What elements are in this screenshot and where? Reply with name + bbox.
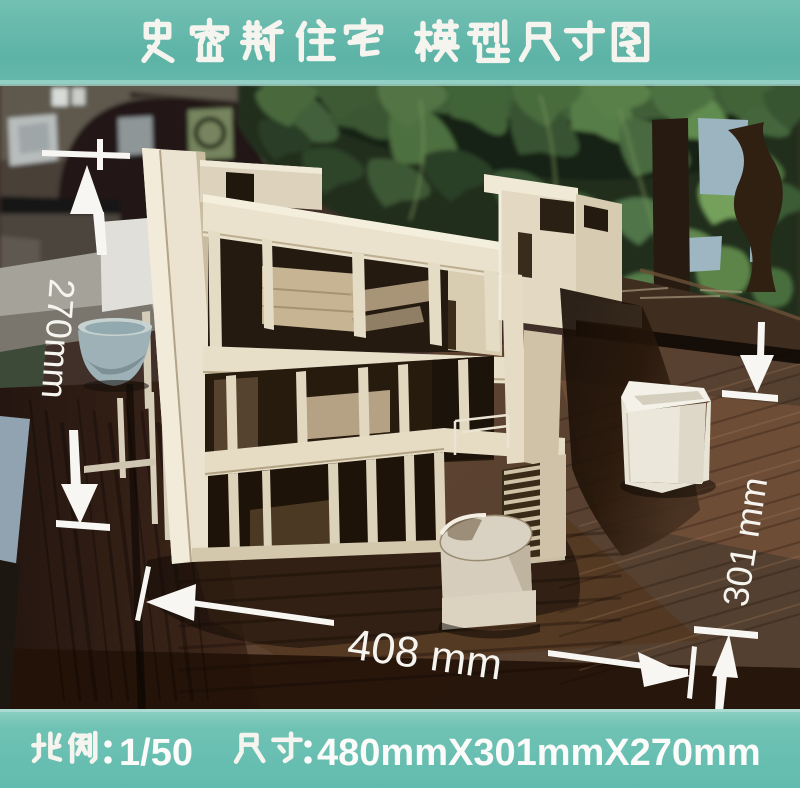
svg-text:1/50: 1/50 xyxy=(119,732,193,774)
svg-text:480mmX301mmX270mm: 480mmX301mmX270mm xyxy=(317,732,761,774)
svg-text:270mm: 270mm xyxy=(34,277,83,400)
